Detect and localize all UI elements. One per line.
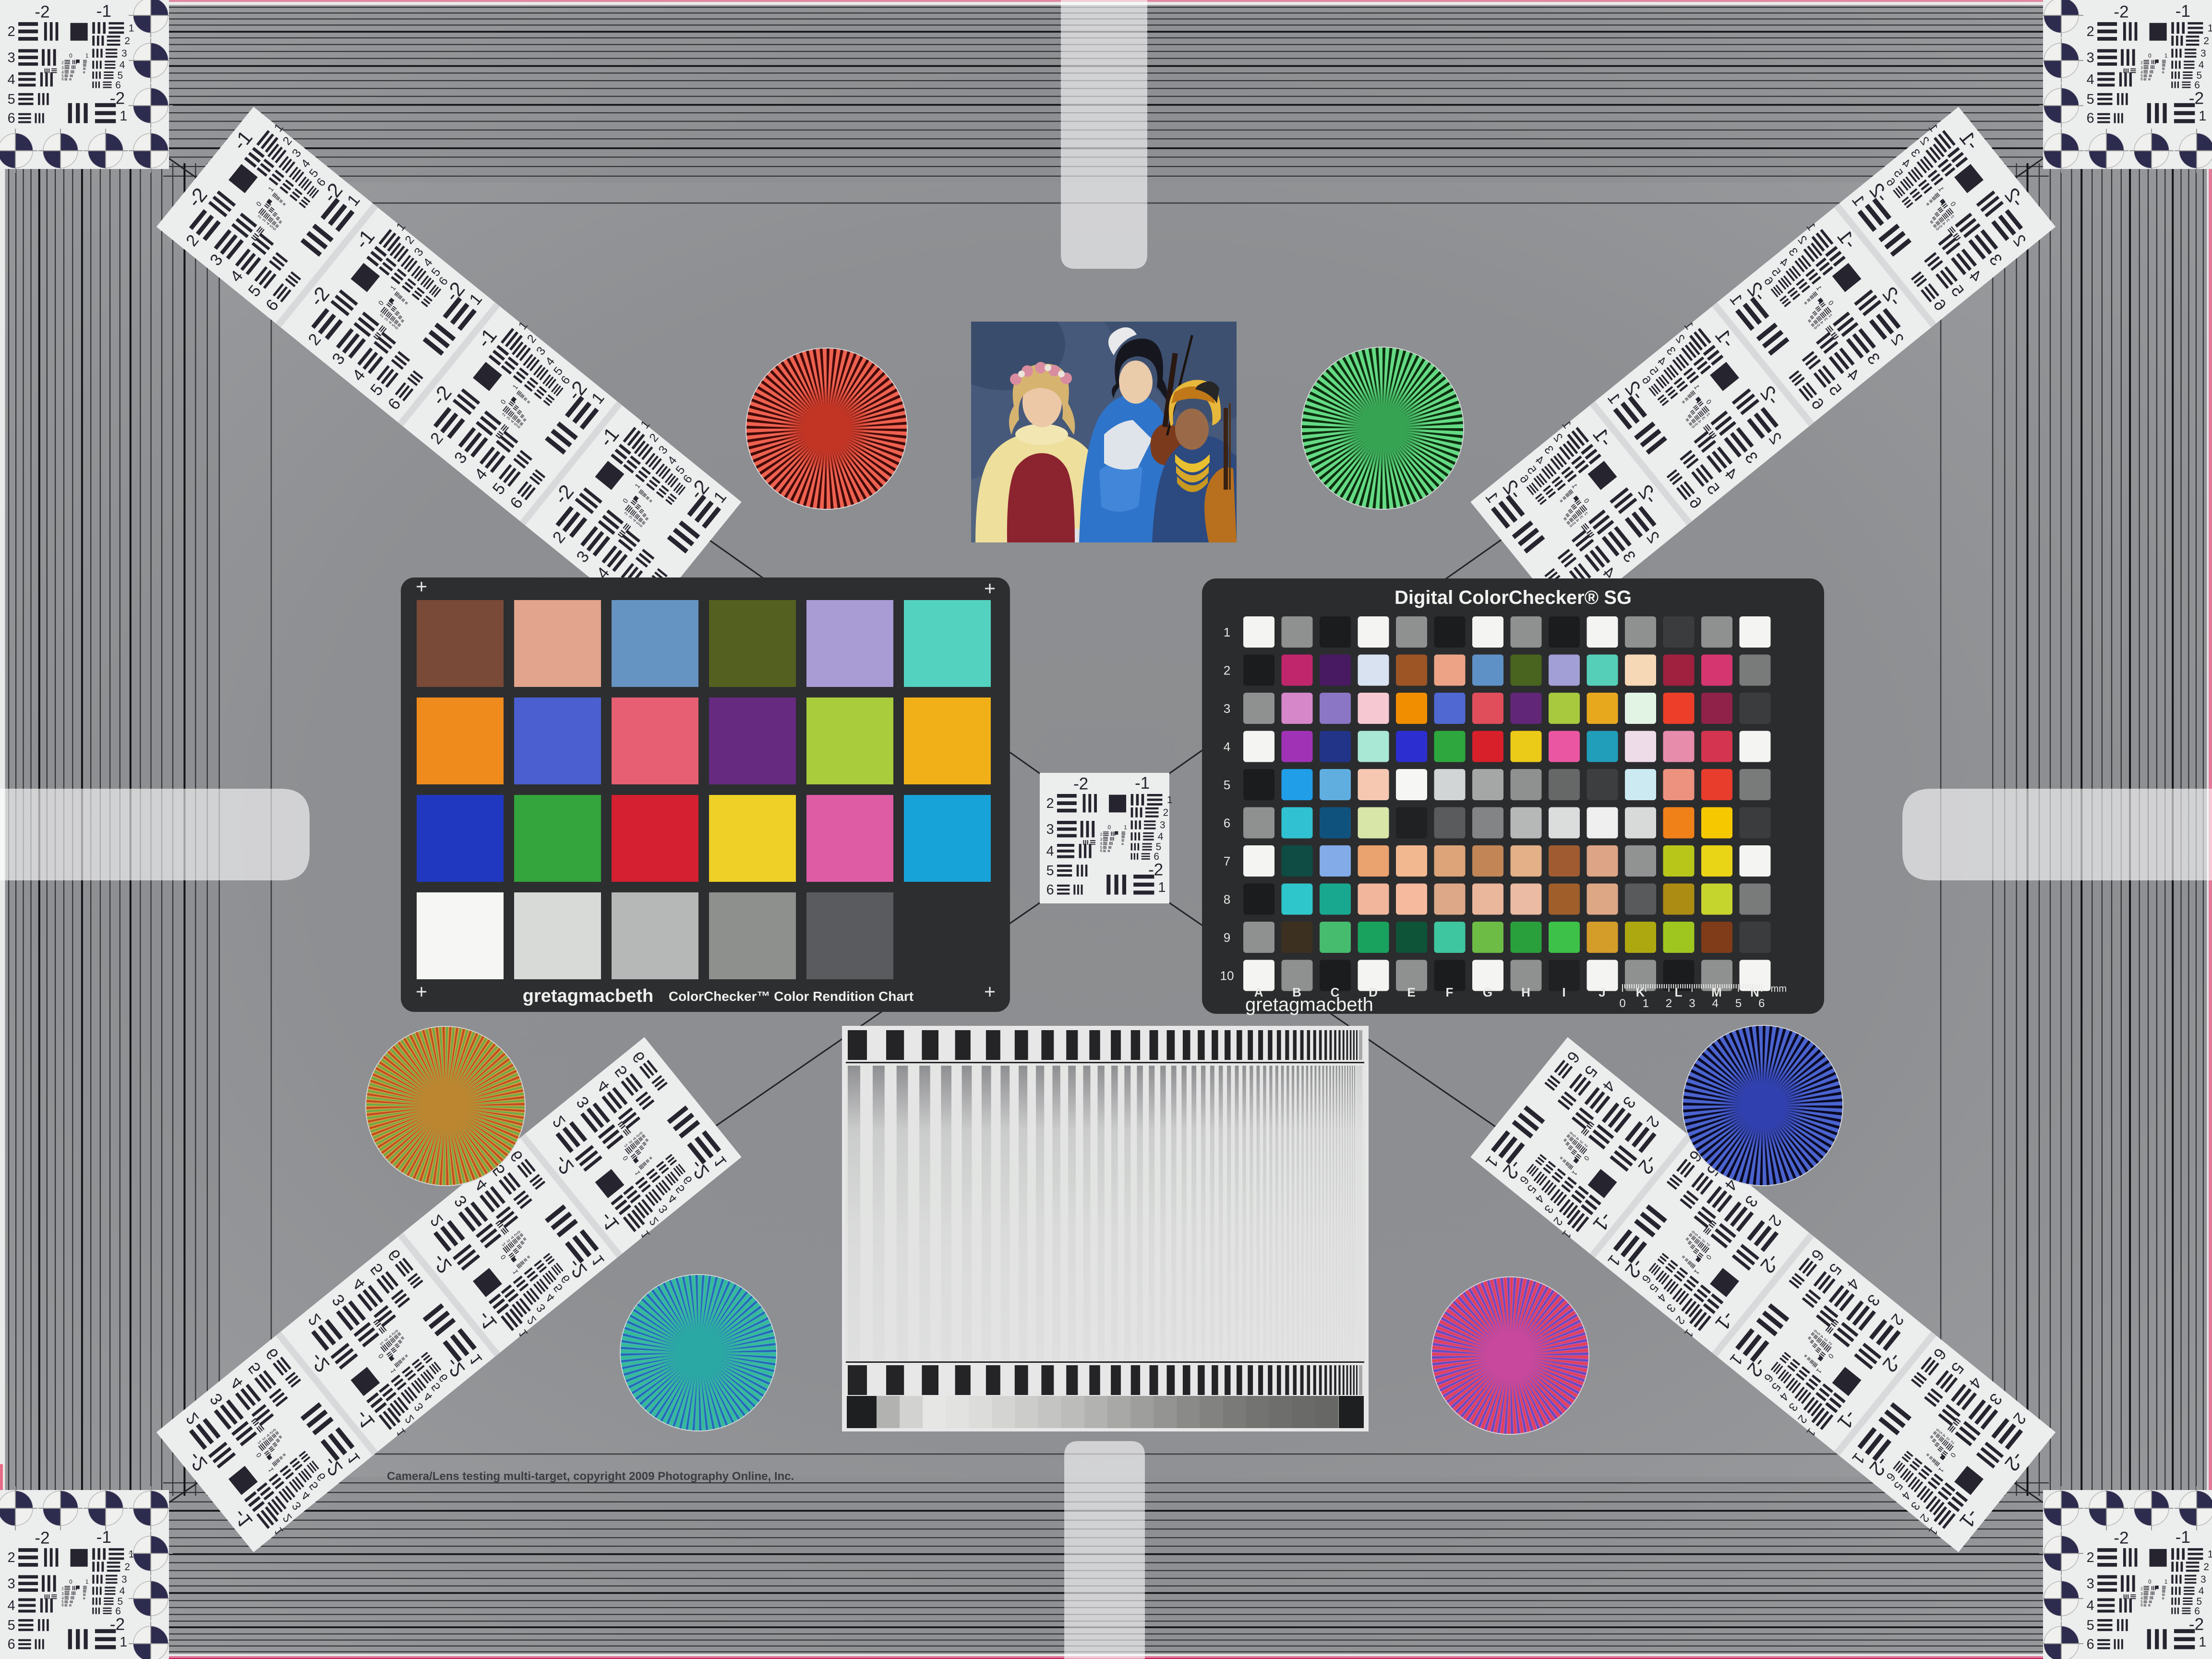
svg-text:F: F bbox=[1446, 985, 1454, 999]
svg-text:8: 8 bbox=[1224, 892, 1230, 907]
svg-text:3: 3 bbox=[1689, 997, 1695, 1010]
svg-text:H: H bbox=[1521, 985, 1530, 999]
svg-text:9: 9 bbox=[1224, 930, 1230, 945]
svg-text:ColorChecker™ Color Rendition: ColorChecker™ Color Rendition Chart bbox=[669, 989, 914, 1004]
svg-text:Camera/Lens testing multi-targ: Camera/Lens testing multi-target, copyri… bbox=[387, 1470, 794, 1483]
svg-text:gretagmacbeth: gretagmacbeth bbox=[523, 986, 653, 1006]
svg-text:I: I bbox=[1562, 985, 1565, 999]
svg-text:J: J bbox=[1599, 985, 1605, 999]
svg-text:G: G bbox=[1483, 985, 1492, 999]
svg-text:gretagmacbeth: gretagmacbeth bbox=[1245, 994, 1373, 1015]
svg-text:6: 6 bbox=[1758, 997, 1765, 1010]
svg-text:0: 0 bbox=[1619, 997, 1625, 1010]
svg-text:3: 3 bbox=[1224, 701, 1230, 716]
svg-text:7: 7 bbox=[1224, 854, 1230, 868]
svg-text:mm: mm bbox=[1771, 984, 1787, 994]
svg-text:1: 1 bbox=[1643, 997, 1649, 1010]
svg-text:5: 5 bbox=[1224, 778, 1230, 792]
svg-text:E: E bbox=[1407, 985, 1415, 999]
svg-text:5: 5 bbox=[1735, 997, 1742, 1010]
svg-text:4: 4 bbox=[1712, 997, 1719, 1010]
svg-text:1: 1 bbox=[1224, 625, 1230, 639]
svg-text:10: 10 bbox=[1220, 969, 1234, 983]
svg-text:2: 2 bbox=[1224, 663, 1230, 678]
svg-text:Digital ColorChecker® SG: Digital ColorChecker® SG bbox=[1395, 587, 1632, 608]
svg-text:6: 6 bbox=[1224, 816, 1230, 830]
svg-text:4: 4 bbox=[1224, 740, 1230, 754]
svg-text:2: 2 bbox=[1666, 997, 1672, 1010]
